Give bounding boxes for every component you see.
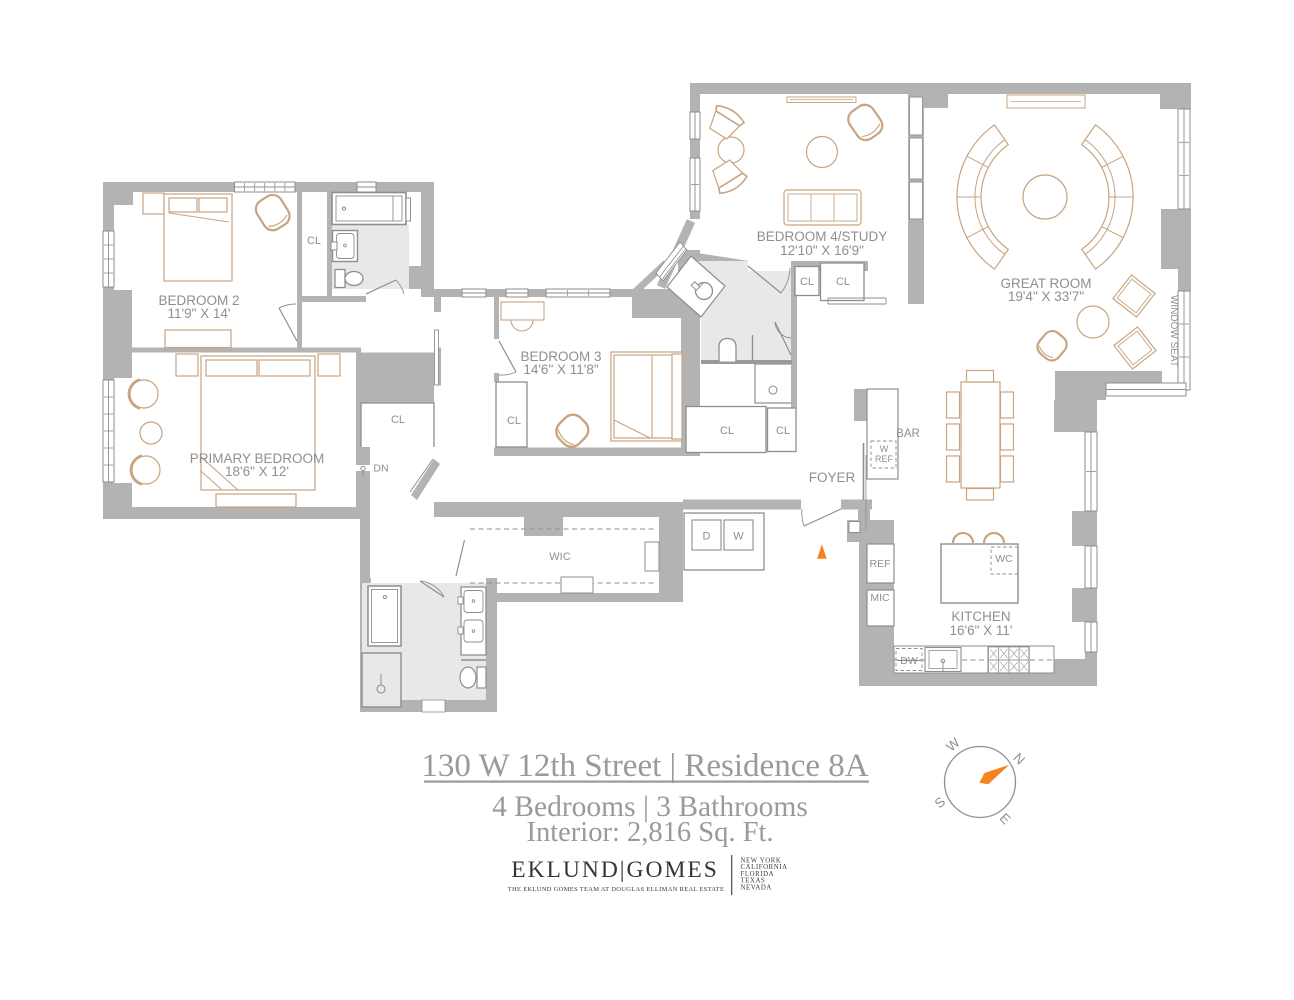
svg-text:CL: CL (391, 414, 405, 426)
svg-text:REF: REF (875, 454, 894, 464)
svg-text:REF: REF (870, 558, 891, 570)
svg-text:THE EKLUND GOMES TEAM AT DOUGL: THE EKLUND GOMES TEAM AT DOUGLAS ELLIMAN… (508, 886, 724, 893)
svg-text:W: W (733, 531, 744, 543)
svg-text:16'6" X 11': 16'6" X 11' (950, 623, 1013, 638)
svg-text:D: D (703, 531, 711, 543)
svg-text:CL: CL (720, 425, 734, 437)
svg-text:EKLUND|GOMES: EKLUND|GOMES (511, 857, 719, 883)
svg-text:CL: CL (776, 425, 790, 437)
svg-text:CL: CL (307, 235, 321, 247)
svg-text:Interior: 2,816 Sq. Ft.: Interior: 2,816 Sq. Ft. (527, 817, 774, 848)
svg-text:KITCHEN: KITCHEN (951, 609, 1010, 624)
svg-text:WC: WC (995, 553, 1013, 565)
svg-text:E: E (997, 810, 1014, 827)
svg-text:18'6" X 12': 18'6" X 12' (225, 464, 289, 479)
svg-text:130 W 12th Street | Residence: 130 W 12th Street | Residence 8A (421, 748, 868, 784)
svg-text:BEDROOM 4/STUDY: BEDROOM 4/STUDY (757, 229, 888, 244)
svg-text:19'4" X 33'7": 19'4" X 33'7" (1008, 289, 1085, 304)
svg-text:N: N (1010, 750, 1028, 768)
svg-text:CL: CL (800, 276, 814, 288)
svg-text:WINDOW SEAT: WINDOW SEAT (1168, 295, 1179, 367)
svg-text:NEVADA: NEVADA (741, 884, 772, 891)
svg-text:11'9" X 14': 11'9" X 14' (168, 306, 231, 321)
svg-text:DW: DW (900, 655, 918, 667)
svg-text:MIC: MIC (870, 592, 890, 604)
svg-text:WIC: WIC (549, 551, 570, 563)
svg-text:W: W (943, 735, 963, 755)
svg-text:S: S (932, 794, 949, 811)
svg-text:BAR: BAR (896, 428, 920, 440)
svg-text:CL: CL (507, 415, 521, 427)
svg-text:14'6" X 11'8": 14'6" X 11'8" (523, 362, 598, 377)
svg-text:FOYER: FOYER (809, 470, 856, 485)
svg-text:DN: DN (373, 463, 388, 475)
svg-text:CL: CL (836, 276, 850, 288)
svg-text:12'10" X 16'9": 12'10" X 16'9" (780, 243, 864, 258)
svg-text:W: W (880, 444, 889, 454)
